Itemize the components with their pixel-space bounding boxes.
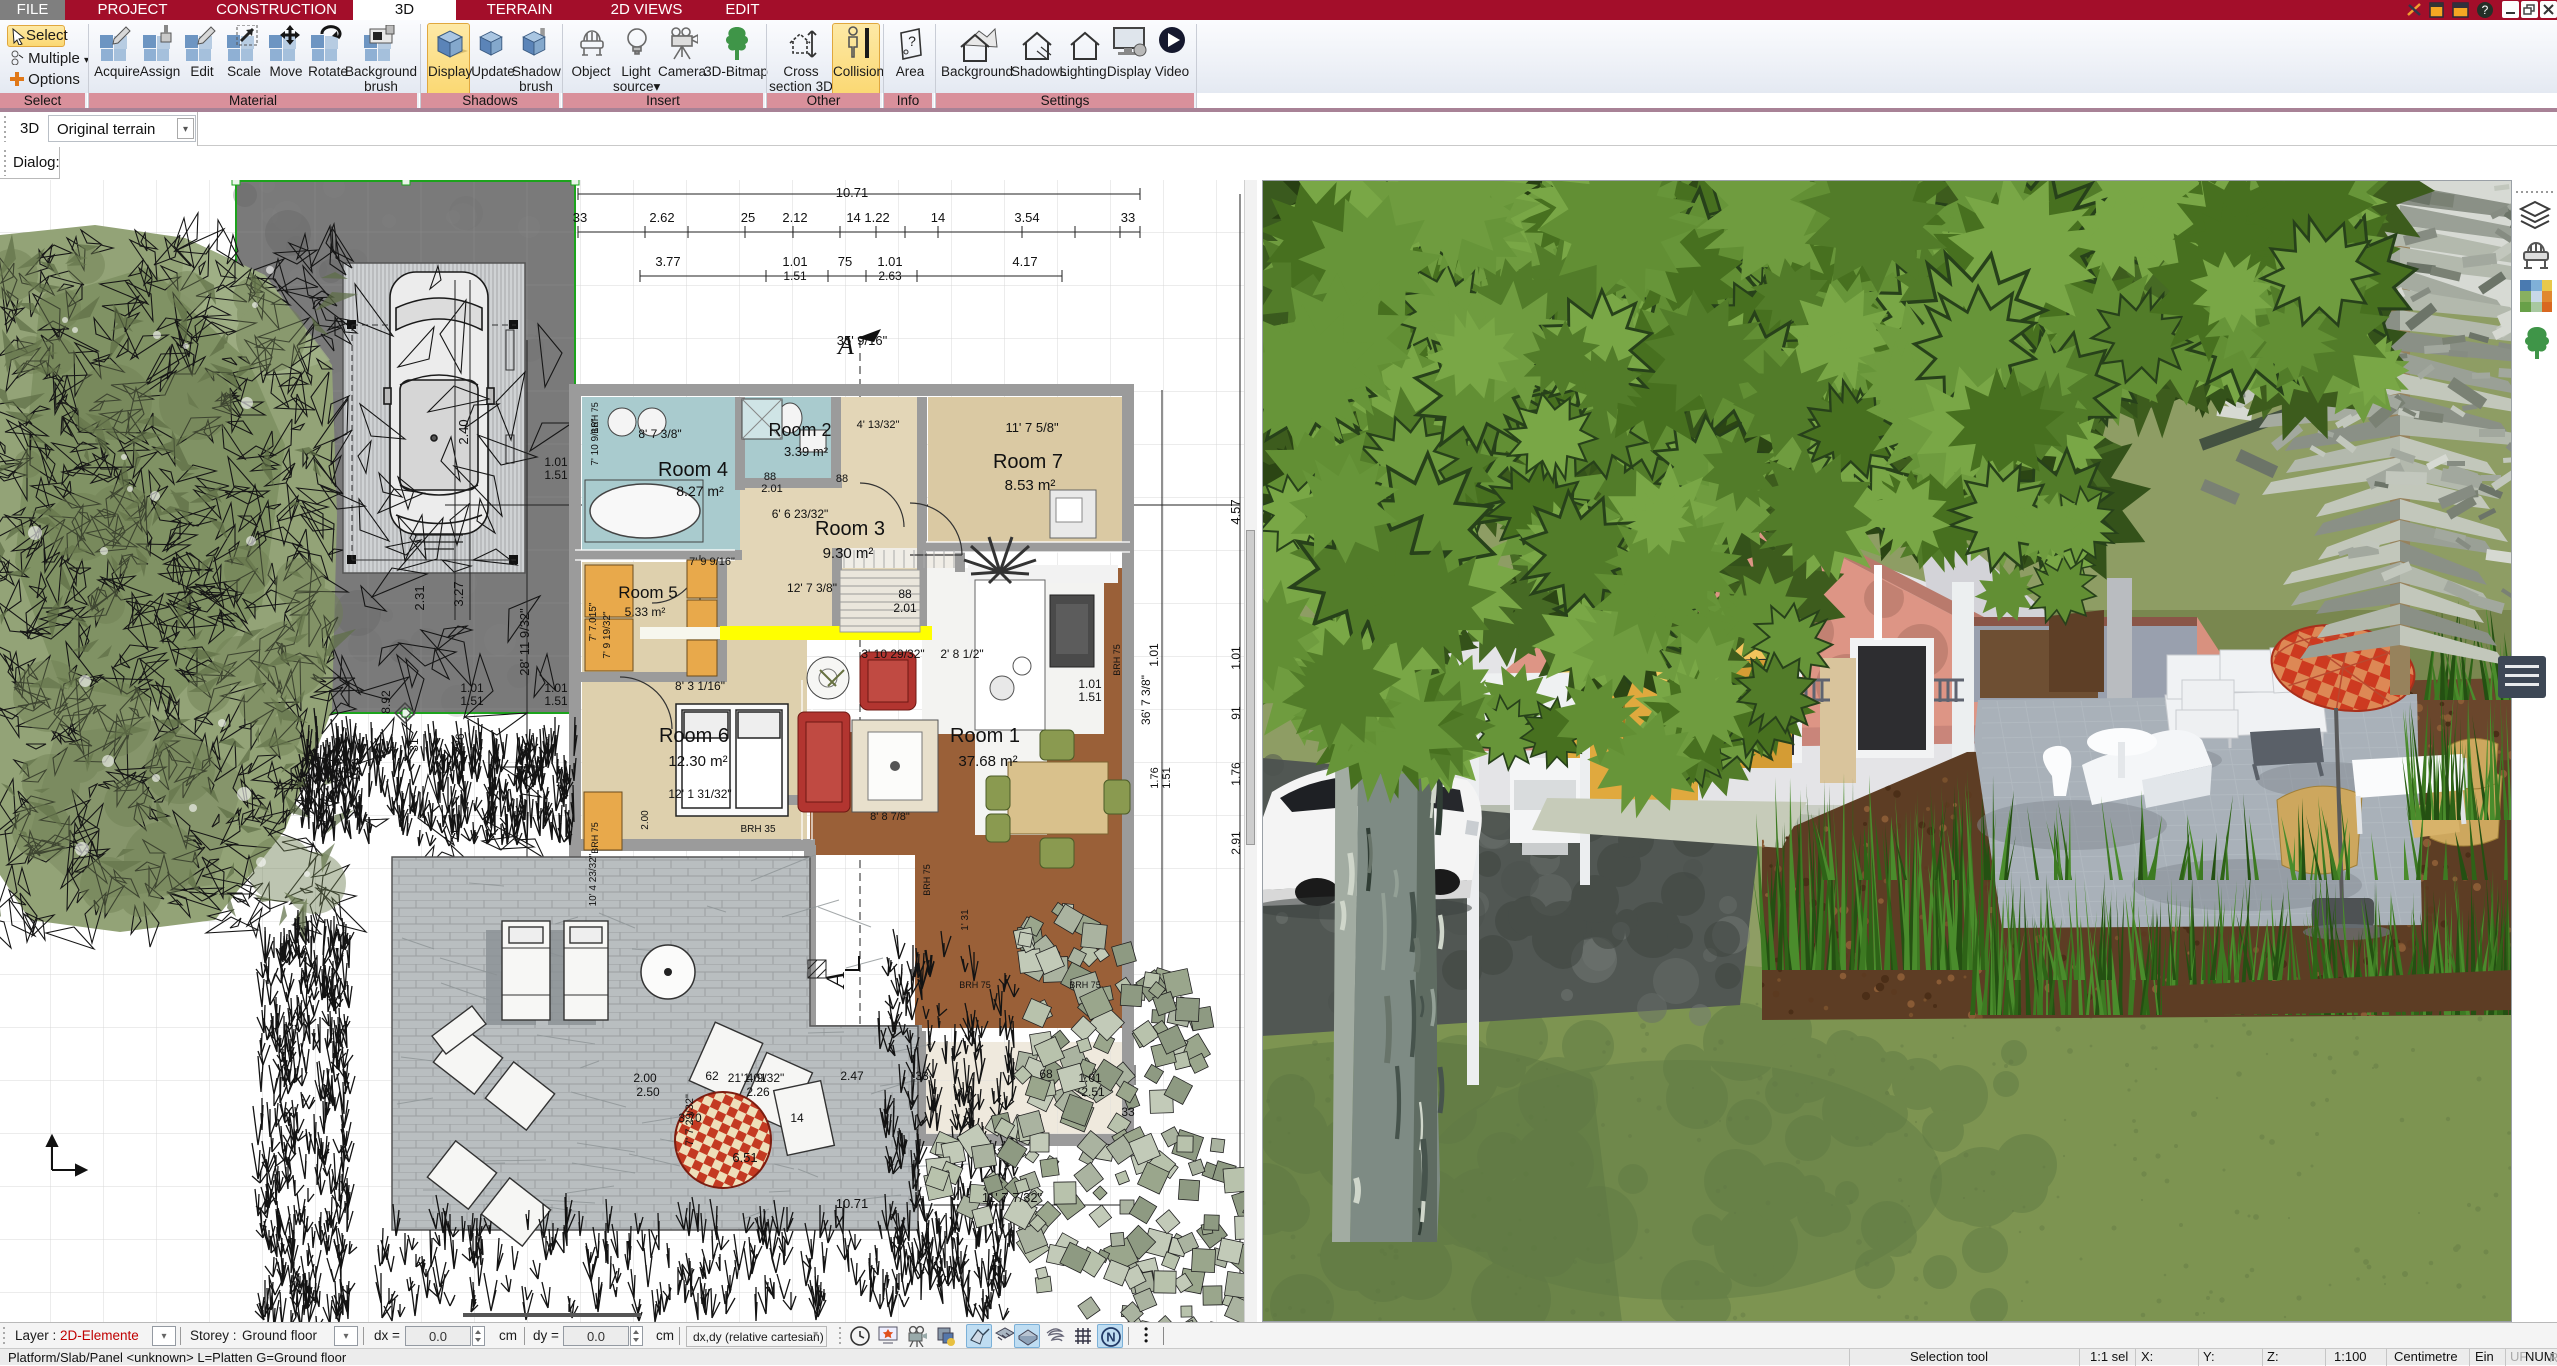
svg-text:4' 13/32": 4' 13/32" (857, 419, 900, 431)
svg-text:2.40: 2.40 (456, 419, 471, 444)
svg-text:1.01: 1.01 (544, 681, 568, 695)
svg-text:11' 7 5/8": 11' 7 5/8" (1005, 420, 1059, 435)
svg-text:Room 3: Room 3 (815, 518, 885, 540)
svg-text:33: 33 (1121, 210, 1135, 225)
svg-text:BRH 35: BRH 35 (740, 824, 775, 835)
svg-text:2.31: 2.31 (412, 585, 427, 610)
svg-text:1.01: 1.01 (743, 1071, 767, 1085)
svg-text:1.01: 1.01 (1229, 646, 1243, 670)
svg-text:12' 1 31/32": 12' 1 31/32" (668, 787, 731, 801)
svg-text:3' 10 29/32": 3' 10 29/32" (861, 647, 924, 661)
svg-text:7' 9 19/32": 7' 9 19/32" (602, 611, 613, 659)
svg-text:3.54: 3.54 (1014, 210, 1039, 225)
svg-text:2.01: 2.01 (761, 483, 782, 495)
svg-text:2.00: 2.00 (633, 1071, 657, 1085)
svg-text:10' 4 23/32": 10' 4 23/32" (588, 853, 599, 906)
svg-text:A: A (821, 972, 850, 990)
svg-text:88: 88 (898, 587, 912, 601)
svg-text:1.51: 1.51 (544, 468, 568, 482)
svg-text:1.01: 1.01 (782, 254, 807, 269)
svg-text:BRH 75: BRH 75 (1069, 980, 1101, 990)
svg-text:2.91: 2.91 (1229, 831, 1243, 855)
svg-text:37.68 m²: 37.68 m² (958, 753, 1017, 770)
svg-text:10.71: 10.71 (836, 1196, 869, 1211)
svg-text:25: 25 (741, 210, 755, 225)
svg-text:91: 91 (1229, 706, 1243, 720)
svg-text:14: 14 (790, 1111, 804, 1125)
svg-text:88: 88 (836, 473, 848, 485)
svg-text:2.00: 2.00 (640, 810, 651, 830)
svg-text:BRH 75: BRH 75 (922, 864, 932, 896)
svg-text:2.12: 2.12 (782, 210, 807, 225)
svg-text:2.62: 2.62 (649, 210, 674, 225)
svg-text:7' 7.015": 7' 7.015" (588, 602, 599, 641)
svg-text:2.47: 2.47 (840, 1069, 864, 1083)
svg-text:14 1.22: 14 1.22 (846, 210, 889, 225)
svg-text:Room 5: Room 5 (618, 583, 678, 602)
svg-text:3.27: 3.27 (451, 581, 466, 606)
svg-text:8' 3 1/16": 8' 3 1/16" (675, 679, 725, 693)
svg-text:Room 7: Room 7 (993, 451, 1063, 473)
svg-text:1.76: 1.76 (1149, 767, 1161, 788)
svg-text:8.53 m²: 8.53 m² (1005, 477, 1056, 494)
svg-text:5.33 m²: 5.33 m² (625, 605, 666, 619)
svg-text:1.51: 1.51 (1078, 690, 1102, 704)
svg-text:1.01: 1.01 (544, 455, 568, 469)
svg-text:BRH 75: BRH 75 (590, 402, 600, 434)
svg-text:2.26: 2.26 (746, 1085, 770, 1099)
svg-text:28' 11 9/32": 28' 11 9/32" (517, 608, 532, 676)
svg-text:6.51: 6.51 (732, 1150, 757, 1165)
svg-text:4.17: 4.17 (1012, 254, 1037, 269)
svg-text:Room 4: Room 4 (658, 459, 728, 481)
svg-text:10.71: 10.71 (836, 185, 869, 200)
svg-text:6' 6 23/32": 6' 6 23/32" (772, 507, 829, 521)
svg-text:12.30 m²: 12.30 m² (668, 753, 727, 770)
svg-text:33: 33 (915, 1069, 929, 1083)
svg-text:Room 2: Room 2 (768, 420, 831, 440)
svg-text:31: 31 (407, 738, 421, 752)
svg-text:33: 33 (1121, 1105, 1135, 1119)
svg-text:76: 76 (453, 733, 467, 747)
svg-text:1.16: 1.16 (349, 758, 363, 782)
svg-text:7' 9 9/16": 7' 9 9/16" (689, 556, 735, 568)
svg-text:9.30 m²: 9.30 m² (823, 545, 874, 562)
svg-text:1' 31: 1' 31 (960, 909, 971, 931)
svg-text:N: N (1106, 1330, 1115, 1345)
svg-text:2.50: 2.50 (636, 1085, 660, 1099)
svg-text:BRH 75: BRH 75 (1112, 644, 1122, 676)
svg-text:14: 14 (931, 210, 945, 225)
svg-text:?: ? (908, 33, 916, 49)
svg-text:4.57: 4.57 (1228, 499, 1243, 524)
svg-text:2.01: 2.01 (893, 601, 917, 615)
svg-text:3.77: 3.77 (655, 254, 680, 269)
svg-text:1.01: 1.01 (1078, 1071, 1102, 1085)
svg-text:1.01: 1.01 (1147, 643, 1161, 667)
svg-text:8' 7 3/8": 8' 7 3/8" (638, 427, 681, 441)
svg-text:75: 75 (838, 254, 852, 269)
svg-text:2.51: 2.51 (1081, 1085, 1105, 1099)
svg-text:BRH 75: BRH 75 (959, 980, 991, 990)
svg-text:11' 7 7/32": 11' 7 7/32" (982, 1190, 1043, 1205)
svg-text:1.51: 1.51 (1161, 767, 1173, 788)
svg-text:36' 7 3/8": 36' 7 3/8" (1139, 675, 1153, 725)
svg-text:8.92: 8.92 (379, 690, 393, 714)
svg-text:1.51: 1.51 (544, 694, 568, 708)
svg-text:1.76: 1.76 (1229, 762, 1243, 786)
svg-text:Room 1: Room 1 (950, 725, 1020, 747)
svg-text:7' 7 29/32": 7' 7 29/32" (684, 1094, 696, 1146)
svg-text:33: 33 (573, 210, 587, 225)
svg-text:35' 9/16": 35' 9/16" (837, 333, 888, 348)
svg-text:2.63: 2.63 (878, 269, 902, 283)
svg-text:1.01: 1.01 (460, 681, 484, 695)
svg-text:1.51: 1.51 (783, 269, 807, 283)
svg-text:1.51: 1.51 (460, 694, 484, 708)
svg-text:62: 62 (705, 1069, 719, 1083)
svg-text:71: 71 (448, 828, 462, 842)
svg-text:68: 68 (1039, 1067, 1053, 1081)
svg-text:88: 88 (764, 471, 776, 483)
svg-text:3.39 m²: 3.39 m² (784, 444, 829, 459)
svg-text:1.01: 1.01 (1078, 677, 1102, 691)
svg-text:2' 8 1/2": 2' 8 1/2" (940, 647, 983, 661)
svg-text:BRH 75: BRH 75 (590, 822, 600, 854)
svg-text:1.01: 1.01 (877, 254, 902, 269)
svg-text:12' 7 3/8": 12' 7 3/8" (787, 581, 837, 595)
svg-text:8' 8 7/8": 8' 8 7/8" (870, 811, 910, 823)
svg-text:Room 6: Room 6 (659, 725, 729, 747)
svg-text:8.27 m²: 8.27 m² (676, 483, 724, 499)
svg-text:?: ? (2482, 3, 2489, 17)
